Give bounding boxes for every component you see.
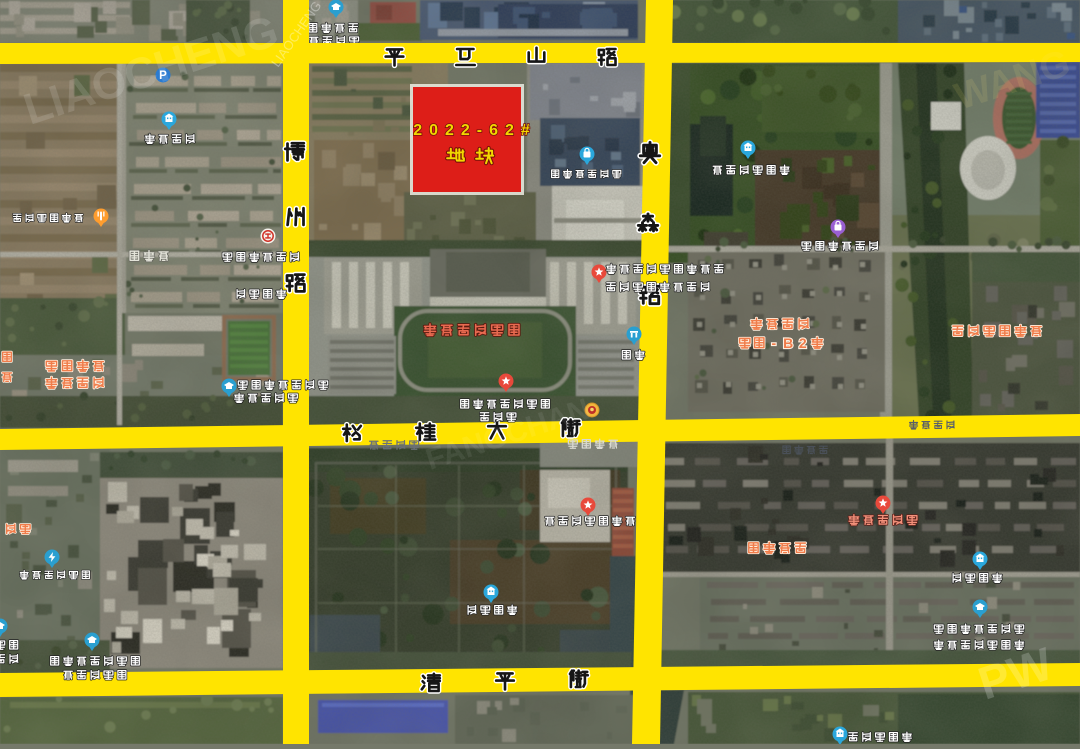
svg-text:2: 2 bbox=[799, 335, 807, 351]
svg-text:B: B bbox=[783, 335, 793, 351]
svg-text:-: - bbox=[771, 335, 776, 351]
svg-text:2022-62#: 2022-62# bbox=[413, 122, 537, 139]
